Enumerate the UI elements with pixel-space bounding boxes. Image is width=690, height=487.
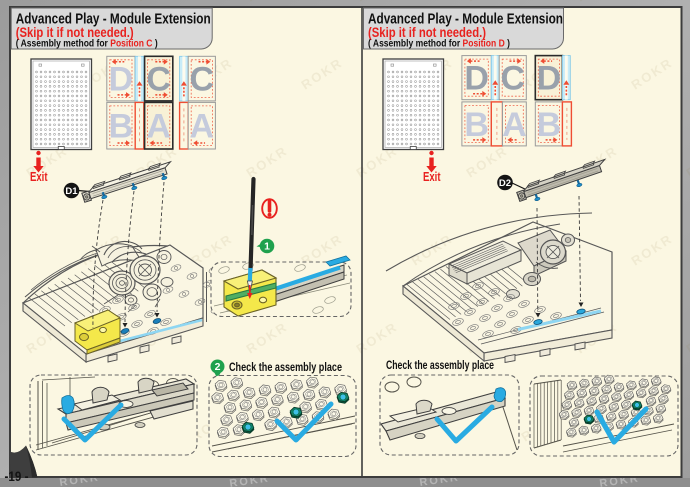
- svg-text:1: 1: [264, 241, 270, 253]
- svg-text:B: B: [537, 106, 562, 144]
- svg-text:Exit: Exit: [30, 170, 48, 184]
- svg-text:D1: D1: [65, 186, 78, 197]
- svg-text:D2: D2: [499, 178, 511, 189]
- svg-text:Check the assembly place: Check the assembly place: [229, 362, 342, 374]
- svg-text:B: B: [109, 108, 134, 146]
- svg-text:2: 2: [215, 361, 221, 373]
- svg-text:( Assembly method for Position: ( Assembly method for Position C ): [16, 38, 158, 50]
- svg-text:-19 -: -19 -: [5, 468, 29, 484]
- svg-text:Exit: Exit: [423, 170, 441, 184]
- svg-text:C: C: [500, 60, 525, 98]
- svg-text:Check the assembly place: Check the assembly place: [386, 360, 494, 372]
- svg-text:C: C: [146, 61, 171, 99]
- svg-text:D: D: [464, 60, 489, 98]
- svg-text:A: A: [146, 108, 171, 146]
- svg-text:D: D: [537, 60, 562, 98]
- svg-text:A: A: [502, 106, 527, 144]
- svg-text:( Assembly method for Position: ( Assembly method for Position D ): [368, 38, 510, 50]
- svg-text:D: D: [109, 61, 134, 99]
- svg-text:C: C: [190, 61, 215, 99]
- svg-text:B: B: [464, 106, 489, 144]
- svg-text:A: A: [190, 108, 215, 146]
